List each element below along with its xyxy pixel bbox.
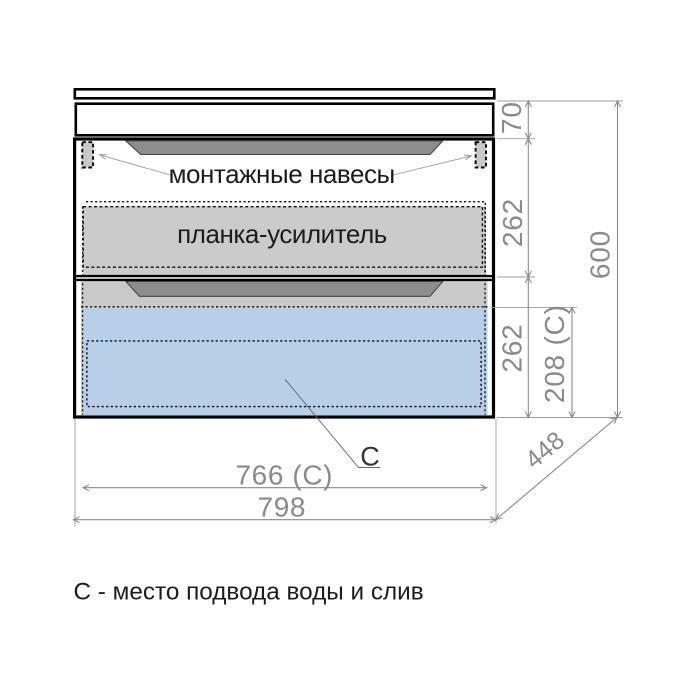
- svg-text:600: 600: [585, 230, 616, 279]
- svg-text:262: 262: [497, 323, 528, 372]
- svg-text:70: 70: [496, 101, 527, 134]
- svg-text:С - место подвода воды и слив: С - место подвода воды и слив: [74, 579, 424, 606]
- svg-text:798: 798: [258, 492, 307, 523]
- svg-text:448: 448: [520, 426, 570, 474]
- svg-text:766 (С): 766 (С): [236, 460, 334, 491]
- svg-text:планка-усилитель: планка-усилитель: [177, 219, 387, 249]
- svg-text:208 (С): 208 (С): [539, 304, 570, 403]
- svg-text:монтажные навесы: монтажные навесы: [169, 159, 395, 189]
- svg-text:262: 262: [497, 198, 528, 247]
- svg-text:С: С: [360, 442, 380, 472]
